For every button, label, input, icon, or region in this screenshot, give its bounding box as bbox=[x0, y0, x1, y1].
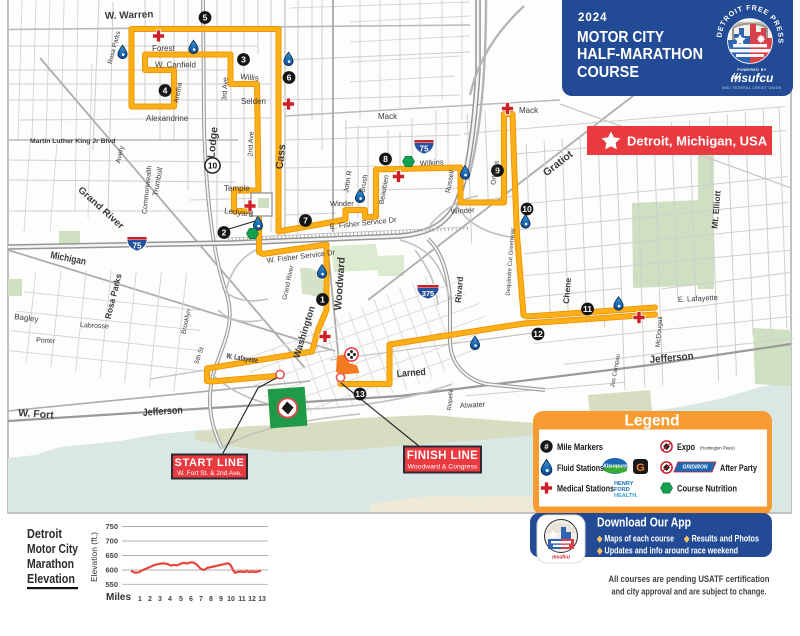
svg-text:4: 4 bbox=[168, 596, 172, 603]
svg-text:Forest: Forest bbox=[152, 44, 175, 53]
svg-text:Elevation (ft.): Elevation (ft.) bbox=[89, 532, 99, 582]
svg-text:Motor City: Motor City bbox=[27, 542, 78, 556]
svg-text:2nd Ave: 2nd Ave bbox=[247, 131, 255, 157]
svg-text:Winder: Winder bbox=[330, 199, 354, 208]
svg-text:MOTOR CITY: MOTOR CITY bbox=[577, 29, 665, 46]
svg-text:12: 12 bbox=[533, 329, 543, 339]
svg-text:Medical Stations: Medical Stations bbox=[557, 484, 614, 494]
svg-text:375: 375 bbox=[422, 289, 434, 298]
svg-text:G: G bbox=[636, 462, 645, 474]
svg-text:Porter: Porter bbox=[36, 337, 56, 345]
svg-text:700: 700 bbox=[105, 537, 118, 546]
svg-text:HALF-MARATHON: HALF-MARATHON bbox=[577, 46, 703, 63]
svg-text:Miles: Miles bbox=[106, 592, 131, 603]
svg-text:Mack: Mack bbox=[378, 112, 398, 121]
svg-text:After Party: After Party bbox=[720, 463, 758, 473]
svg-text:COURSE: COURSE bbox=[577, 64, 639, 81]
svg-text:Selden: Selden bbox=[241, 97, 266, 106]
svg-text:Winder: Winder bbox=[451, 205, 476, 216]
svg-text:3: 3 bbox=[241, 55, 246, 65]
svg-text:5: 5 bbox=[179, 596, 183, 603]
svg-text:Woodward & Congress: Woodward & Congress bbox=[408, 464, 478, 471]
svg-text:550: 550 bbox=[105, 580, 118, 589]
svg-text:11: 11 bbox=[238, 596, 246, 603]
svg-text:Martin Luther King Jr Blvd: Martin Luther King Jr Blvd bbox=[30, 138, 115, 145]
svg-text:Legend: Legend bbox=[624, 413, 679, 430]
svg-text:W. Warren: W. Warren bbox=[105, 9, 154, 22]
svg-text:750: 750 bbox=[105, 522, 118, 531]
svg-text:Absopure: Absopure bbox=[602, 464, 627, 470]
svg-text:2024: 2024 bbox=[578, 12, 608, 24]
svg-text:75: 75 bbox=[420, 144, 429, 153]
svg-text:MSU FEDERAL CREDIT UNION: MSU FEDERAL CREDIT UNION bbox=[723, 86, 782, 90]
svg-text:GRIDIRON: GRIDIRON bbox=[683, 465, 708, 471]
svg-text:W. Canfield: W. Canfield bbox=[155, 61, 196, 70]
svg-text:◆ Updates and info around race: ◆ Updates and info around race weekend bbox=[596, 546, 738, 556]
svg-text:12: 12 bbox=[248, 596, 256, 603]
svg-text:8: 8 bbox=[209, 596, 213, 603]
svg-text:Atwater: Atwater bbox=[460, 400, 486, 410]
svg-text:11: 11 bbox=[583, 304, 592, 314]
svg-text:3: 3 bbox=[158, 596, 162, 603]
svg-text:Elevation: Elevation bbox=[27, 572, 75, 586]
svg-text:4: 4 bbox=[163, 86, 168, 96]
svg-text:10: 10 bbox=[227, 596, 235, 603]
svg-text:and city approval and are subj: and city approval and are subject to cha… bbox=[612, 587, 767, 598]
svg-text:Fluid Stations: Fluid Stations bbox=[557, 463, 604, 473]
svg-text:All courses are pending USATF: All courses are pending USATF certificat… bbox=[609, 574, 770, 585]
svg-text:2: 2 bbox=[222, 228, 227, 238]
svg-text:Expo: Expo bbox=[677, 442, 695, 452]
svg-text:START LINE: START LINE bbox=[175, 457, 245, 469]
svg-text:#: # bbox=[544, 443, 549, 452]
svg-text:(Huntington Place): (Huntington Place) bbox=[700, 446, 735, 451]
svg-text:13: 13 bbox=[355, 389, 365, 399]
svg-text:7: 7 bbox=[199, 596, 203, 603]
svg-text:W. Fort: W. Fort bbox=[18, 407, 55, 421]
svg-text:1: 1 bbox=[138, 596, 142, 603]
svg-text:600: 600 bbox=[105, 566, 118, 575]
svg-text:13: 13 bbox=[258, 596, 266, 603]
svg-text:Alexandrine: Alexandrine bbox=[146, 114, 189, 123]
svg-text:10: 10 bbox=[522, 204, 532, 214]
svg-text:W. Fort St. & 2nd Ave.: W. Fort St. & 2nd Ave. bbox=[177, 470, 242, 477]
svg-text:FINISH LINE: FINISH LINE bbox=[407, 450, 479, 462]
svg-text:HEALTH.: HEALTH. bbox=[614, 493, 638, 499]
svg-text:650: 650 bbox=[105, 551, 118, 560]
svg-text:Temple: Temple bbox=[224, 184, 250, 193]
svg-text:8: 8 bbox=[383, 154, 388, 164]
svg-text:9: 9 bbox=[219, 596, 223, 603]
svg-text:2: 2 bbox=[148, 596, 152, 603]
svg-text:Marathon: Marathon bbox=[27, 557, 74, 571]
svg-text:Mile Markers: Mile Markers bbox=[557, 442, 603, 452]
svg-text:1: 1 bbox=[320, 295, 325, 305]
svg-text:Download Our App: Download Our App bbox=[597, 515, 691, 530]
svg-text:10: 10 bbox=[208, 161, 218, 171]
svg-text:◆ Maps of each course: ◆ Maps of each course bbox=[596, 534, 674, 544]
svg-text:Larned: Larned bbox=[396, 367, 426, 380]
svg-text:3rd Ave: 3rd Ave bbox=[221, 77, 229, 101]
svg-text:Detroit: Detroit bbox=[27, 527, 63, 541]
svg-text:6: 6 bbox=[287, 73, 292, 83]
svg-text:◆ Results and Photos: ◆ Results and Photos bbox=[683, 534, 759, 544]
svg-text:Course Nutrition: Course Nutrition bbox=[677, 484, 737, 494]
svg-text:5: 5 bbox=[203, 13, 208, 23]
svg-text:75: 75 bbox=[133, 241, 142, 250]
svg-text:Detroit, Michigan, USA: Detroit, Michigan, USA bbox=[627, 134, 768, 149]
svg-text:6: 6 bbox=[189, 596, 193, 603]
svg-text:7: 7 bbox=[303, 216, 308, 226]
svg-text:Wilkins: Wilkins bbox=[420, 157, 445, 168]
svg-text:Mack: Mack bbox=[519, 106, 539, 115]
svg-text:msufcu: msufcu bbox=[552, 555, 570, 561]
